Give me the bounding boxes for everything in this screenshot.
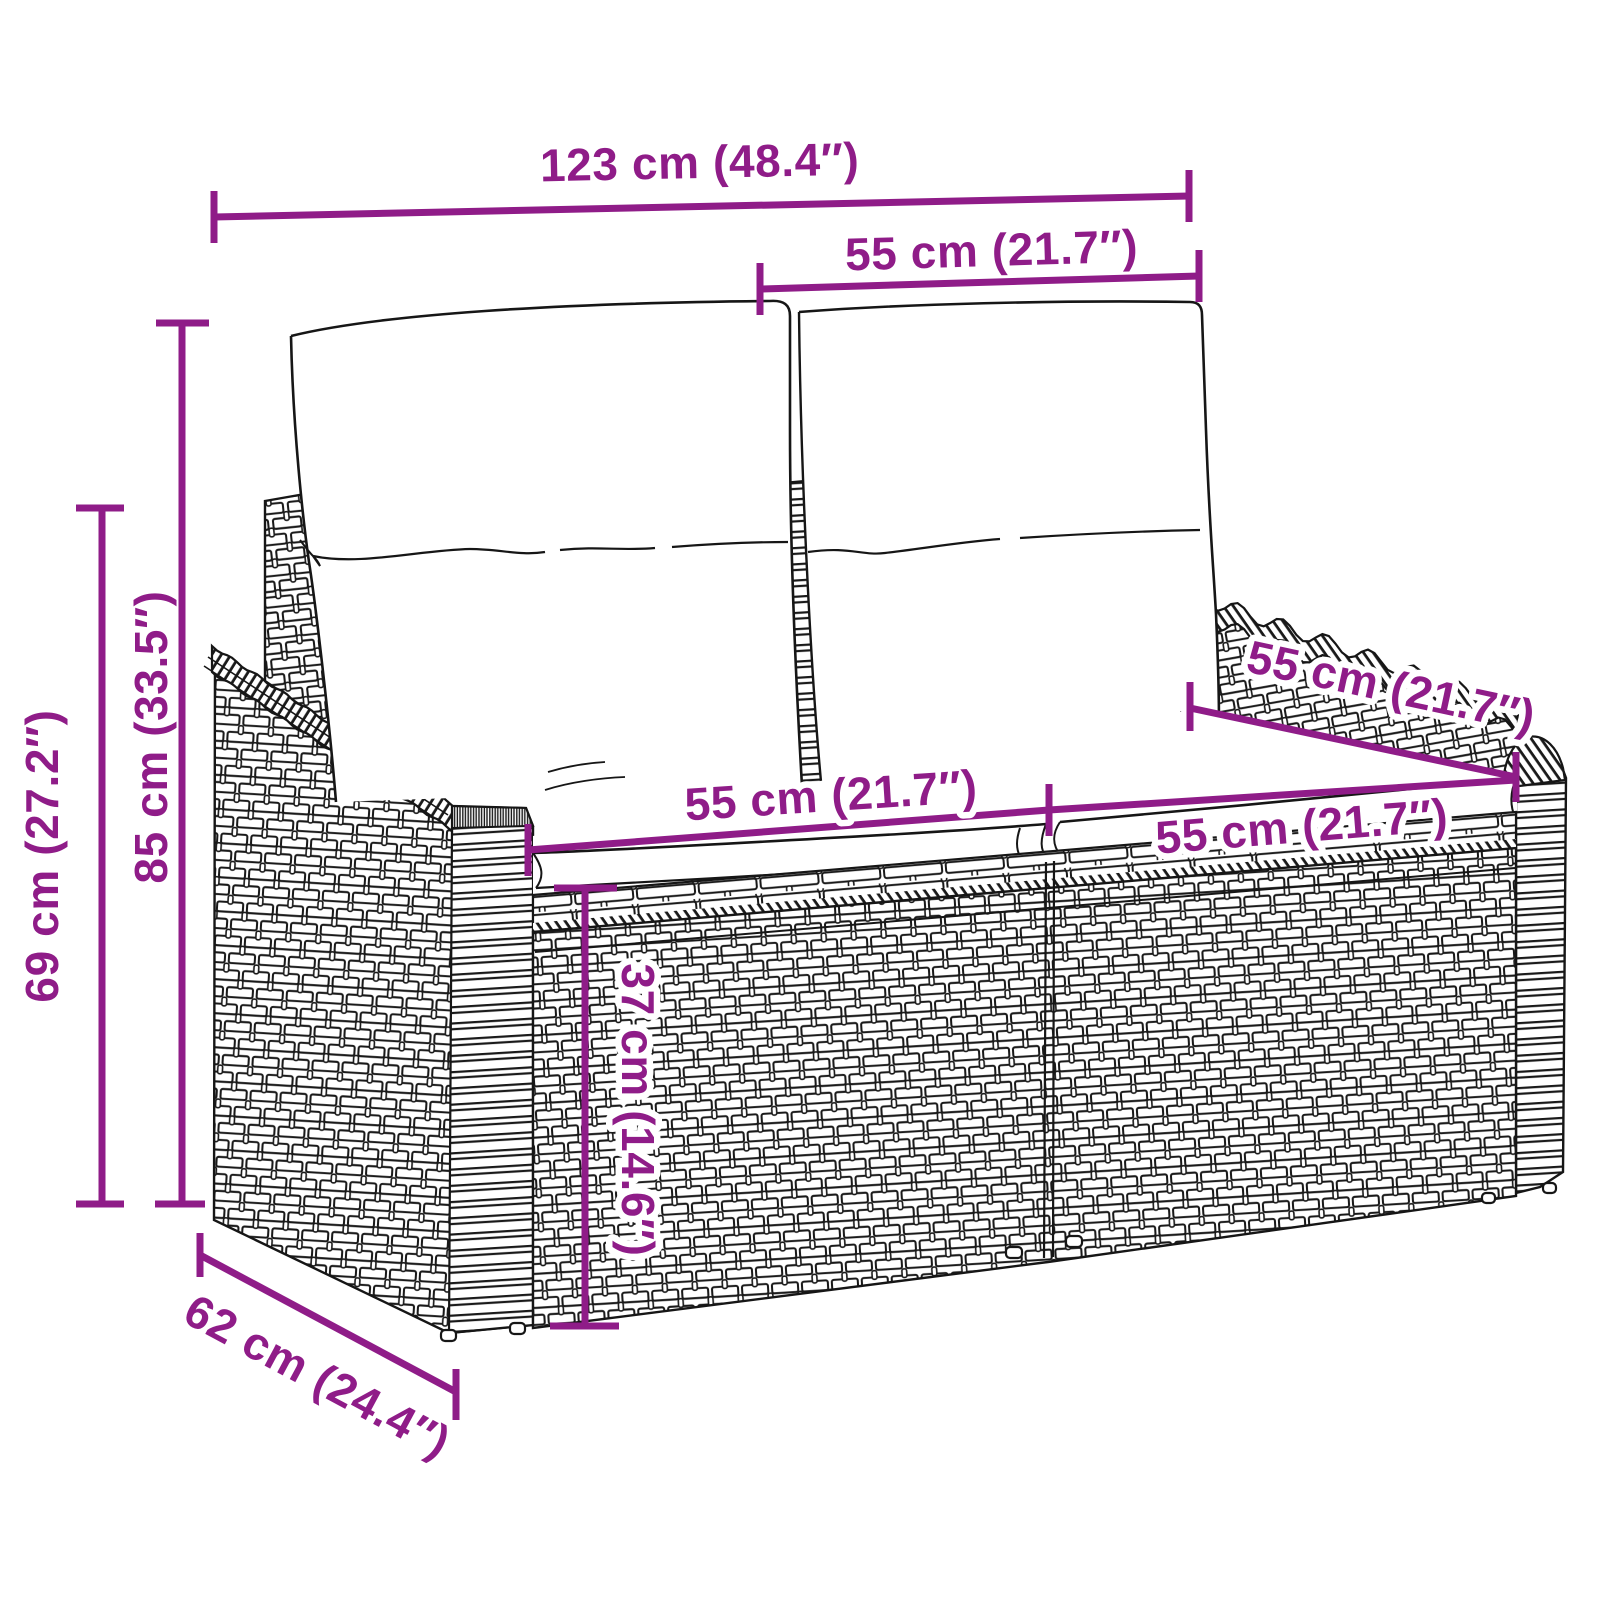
svg-text:55 cm (21.7″): 55 cm (21.7″) — [844, 220, 1139, 281]
svg-text:37 cm (14.6″): 37 cm (14.6″) — [612, 963, 664, 1256]
svg-text:69 cm (27.2″): 69 cm (27.2″) — [16, 709, 68, 1002]
svg-text:123 cm (48.4″): 123 cm (48.4″) — [539, 133, 859, 192]
svg-text:85 cm (33.5″): 85 cm (33.5″) — [125, 590, 177, 883]
